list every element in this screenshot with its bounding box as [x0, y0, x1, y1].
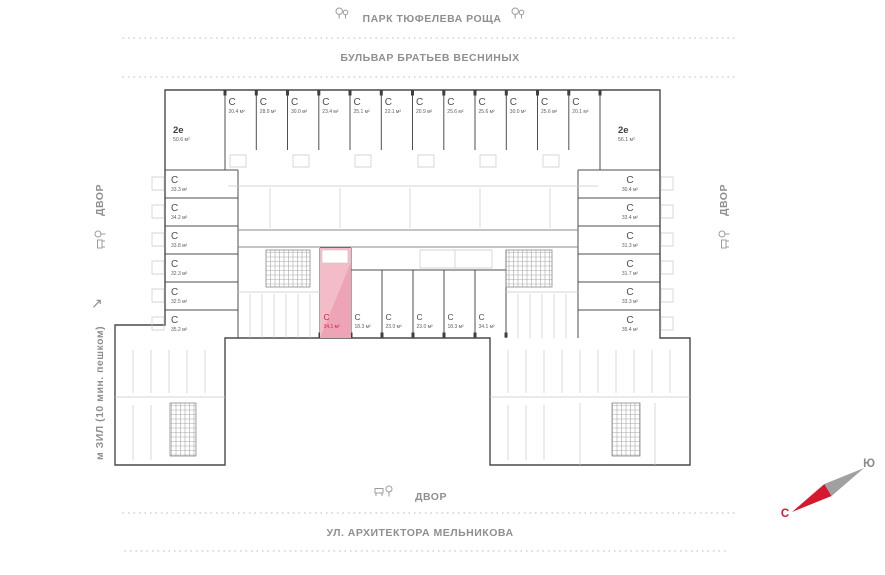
- apartment-unit[interactable]: С 34.1 м²: [479, 312, 496, 330]
- unit-area: 34.2 м²: [171, 215, 188, 221]
- unit-type: С: [291, 97, 298, 108]
- unit-type: С: [171, 175, 178, 186]
- compass: С Ю: [781, 458, 875, 520]
- unit-type: С: [416, 97, 423, 108]
- unit-type: С: [626, 315, 633, 326]
- unit-area: 20.4 м²: [229, 109, 246, 115]
- unit-area: 34.1 м²: [479, 324, 496, 330]
- apartment-unit[interactable]: С 31.7 м²: [622, 259, 639, 277]
- unit-type: С: [626, 231, 633, 242]
- unit-type: С: [510, 97, 517, 108]
- boulevard-label: БУЛЬВАР БРАТЬЕВ ВЕСНИНЫХ: [340, 52, 519, 64]
- apartment-unit[interactable]: С 30.0 м²: [510, 97, 527, 115]
- unit-type: 2е: [618, 125, 629, 136]
- apartment-unit[interactable]: С 25.6 м²: [479, 97, 496, 115]
- unit-area: 23.4 м²: [322, 109, 339, 115]
- unit-area: 20.9 м²: [416, 109, 433, 115]
- yard-bottom-label: ДВОР: [415, 491, 447, 503]
- unit-area: 18.3 м²: [448, 324, 465, 330]
- unit-type: С: [171, 315, 178, 326]
- unit-type: С: [171, 287, 178, 298]
- yard-bottom-icon: [375, 486, 392, 497]
- unit-area: 34.1 м²: [324, 324, 341, 330]
- apartment-unit[interactable]: С 33.8 м²: [171, 231, 188, 249]
- street-bottom-label: УЛ. АРХИТЕКТОРА МЕЛЬНИКОВА: [326, 527, 513, 539]
- unit-area: 32.5 м²: [171, 299, 188, 305]
- apartment-unit[interactable]: С 31.3 м²: [622, 231, 639, 249]
- yard-right-label: ДВОР: [718, 184, 730, 216]
- apartment-unit[interactable]: С 34.2 м²: [171, 203, 188, 221]
- unit-area: 35.4 м²: [622, 327, 639, 333]
- unit-area: 25.6 м²: [479, 109, 496, 115]
- yard-left-icon: [95, 231, 106, 248]
- unit-type: С: [479, 97, 486, 108]
- unit-area: 23.0 м²: [386, 324, 403, 330]
- apartment-unit[interactable]: 2е 56.1 м²: [618, 125, 635, 143]
- building-walls: [115, 90, 690, 465]
- unit-type: С: [417, 312, 423, 322]
- apartment-unit[interactable]: С 30.0 м²: [291, 97, 308, 115]
- compass-south-label: Ю: [863, 458, 875, 470]
- apartment-unit[interactable]: С 23.0 м²: [417, 312, 434, 330]
- unit-type: С: [322, 97, 329, 108]
- unit-type: С: [626, 287, 633, 298]
- metro-label: м ЗИЛ (10 мин. пешком): [94, 326, 106, 460]
- unit-type: С: [479, 312, 485, 322]
- unit-type: С: [447, 97, 454, 108]
- yard-left-label: ДВОР: [94, 184, 106, 216]
- unit-type: С: [171, 231, 178, 242]
- unit-type: С: [541, 97, 548, 108]
- unit-area: 30.0 м²: [291, 109, 308, 115]
- apartment-unit[interactable]: С 20.1 м²: [572, 97, 589, 115]
- apartment-unit[interactable]: С 25.6 м²: [541, 97, 558, 115]
- unit-area: 50.6 м²: [173, 137, 190, 143]
- unit-type: С: [626, 259, 633, 270]
- unit-type: С: [626, 175, 633, 186]
- apartment-unit[interactable]: 2е 50.6 м²: [173, 125, 190, 143]
- apartment-unit[interactable]: С 20.4 м²: [229, 97, 246, 115]
- unit-area: 33.3 м²: [171, 187, 188, 193]
- apartment-unit[interactable]: С 32.5 м²: [171, 287, 188, 305]
- unit-area: 33.4 м²: [622, 215, 639, 221]
- unit-area: 18.3 м²: [355, 324, 372, 330]
- unit-area: 30.4 м²: [622, 187, 639, 193]
- unit-area: 35.2 м²: [171, 327, 188, 333]
- apartment-unit[interactable]: С 18.3 м²: [448, 312, 465, 330]
- unit-area: 33.3 м²: [622, 299, 639, 305]
- unit-area: 28.9 м²: [260, 109, 277, 115]
- apartment-unit[interactable]: С 30.4 м²: [622, 175, 639, 193]
- apartment-unit[interactable]: С 33.4 м²: [622, 203, 639, 221]
- apartment-unit-selected[interactable]: С 34.1 м²: [320, 248, 351, 338]
- unit-area: 31.7 м²: [622, 271, 639, 277]
- unit-type: 2е: [173, 125, 184, 136]
- unit-type: С: [626, 203, 633, 214]
- metro-arrow-icon: ↗: [91, 295, 103, 311]
- unit-type: С: [171, 203, 178, 214]
- apartment-unit[interactable]: С 32.3 м²: [171, 259, 188, 277]
- unit-type: С: [572, 97, 579, 108]
- unit-type: С: [355, 312, 361, 322]
- apartment-unit[interactable]: С 23.0 м²: [386, 312, 403, 330]
- unit-area: 25.6 м²: [541, 109, 558, 115]
- unit-type: С: [354, 97, 361, 108]
- apartment-unit[interactable]: С 23.4 м²: [322, 97, 339, 115]
- unit-area: 31.3 м²: [622, 243, 639, 249]
- unit-area: 33.8 м²: [171, 243, 188, 249]
- unit-area: 22.1 м²: [385, 109, 402, 115]
- park-trees-icon-left: [336, 8, 348, 19]
- unit-type: С: [385, 97, 392, 108]
- apartment-unit[interactable]: С 33.3 м²: [622, 287, 639, 305]
- floor-plan-svg: ПАРК ТЮФЕЛЕВА РОЩА БУЛЬВАР БРАТЬЕВ ВЕСНИ…: [0, 0, 885, 575]
- unit-area: 23.0 м²: [417, 324, 434, 330]
- apartment-unit[interactable]: С 25.1 м²: [354, 97, 371, 115]
- apartment-unit[interactable]: С 35.4 м²: [622, 315, 639, 333]
- unit-area: 56.1 м²: [618, 137, 635, 143]
- apartment-unit[interactable]: С 18.3 м²: [355, 312, 372, 330]
- unit-type: С: [324, 312, 330, 322]
- apartment-unit[interactable]: С 22.1 м²: [385, 97, 402, 115]
- park-trees-icon-right: [512, 8, 524, 19]
- floor-plan-page: ПАРК ТЮФЕЛЕВА РОЩА БУЛЬВАР БРАТЬЕВ ВЕСНИ…: [0, 0, 885, 575]
- unit-type: С: [386, 312, 392, 322]
- unit-area: 32.3 м²: [171, 271, 188, 277]
- compass-needle-south: [824, 468, 864, 496]
- unit-area: 25.1 м²: [354, 109, 371, 115]
- unit-area: 25.6 м²: [447, 109, 464, 115]
- yard-right-icon: [719, 231, 730, 248]
- unit-type: С: [260, 97, 267, 108]
- compass-north-label: С: [781, 508, 789, 520]
- apartment-unit[interactable]: С 33.3 м²: [171, 175, 188, 193]
- park-label: ПАРК ТЮФЕЛЕВА РОЩА: [363, 13, 502, 25]
- unit-type: С: [448, 312, 454, 322]
- stair-cores: [170, 250, 640, 456]
- unit-area: 20.1 м²: [572, 109, 589, 115]
- apartment-unit[interactable]: С 28.9 м²: [260, 97, 277, 115]
- apartment-unit[interactable]: С 35.2 м²: [171, 315, 188, 333]
- apartment-unit[interactable]: С 20.9 м²: [416, 97, 433, 115]
- apartment-unit[interactable]: С 25.6 м²: [447, 97, 464, 115]
- unit-type: С: [171, 259, 178, 270]
- compass-needle-north: [792, 484, 832, 512]
- unit-type: С: [229, 97, 236, 108]
- unit-area: 30.0 м²: [510, 109, 527, 115]
